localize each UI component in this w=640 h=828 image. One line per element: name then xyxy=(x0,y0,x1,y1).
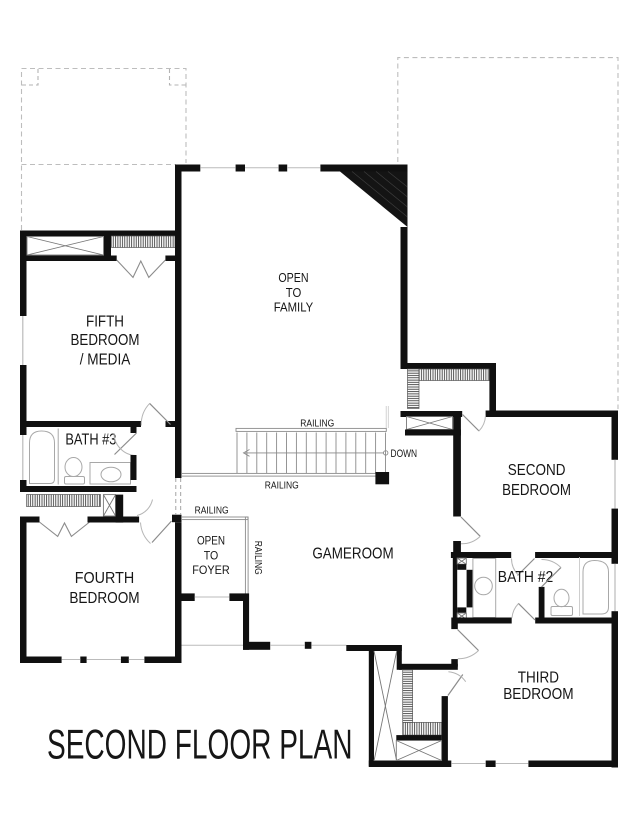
svg-text:RAILING: RAILING xyxy=(300,418,334,429)
svg-text:OPEN: OPEN xyxy=(197,534,225,548)
svg-text:BEDROOM: BEDROOM xyxy=(69,590,139,607)
svg-text:THIRD: THIRD xyxy=(518,669,559,686)
svg-text:BEDROOM: BEDROOM xyxy=(503,686,573,703)
svg-text:BATH #3: BATH #3 xyxy=(65,431,116,448)
svg-text:FIFTH: FIFTH xyxy=(86,314,124,331)
svg-text:OPEN: OPEN xyxy=(278,270,308,285)
svg-text:TO: TO xyxy=(204,549,219,563)
svg-text:BEDROOM: BEDROOM xyxy=(502,482,571,499)
svg-text:SECOND FLOOR PLAN: SECOND FLOOR PLAN xyxy=(47,721,353,768)
svg-text:FOYER: FOYER xyxy=(192,563,230,577)
svg-text:TO: TO xyxy=(286,285,302,300)
svg-text:DOWN: DOWN xyxy=(391,448,418,460)
svg-text:RAILING: RAILING xyxy=(252,541,263,575)
svg-text:RAILING: RAILING xyxy=(265,480,299,491)
svg-text:RAILING: RAILING xyxy=(195,505,229,516)
svg-text:/ MEDIA: / MEDIA xyxy=(80,352,131,369)
svg-text:SECOND: SECOND xyxy=(508,462,566,479)
svg-text:BEDROOM: BEDROOM xyxy=(71,332,140,349)
svg-text:FAMILY: FAMILY xyxy=(274,299,314,314)
svg-text:FOURTH: FOURTH xyxy=(75,570,134,587)
svg-text:GAMEROOM: GAMEROOM xyxy=(312,545,393,562)
